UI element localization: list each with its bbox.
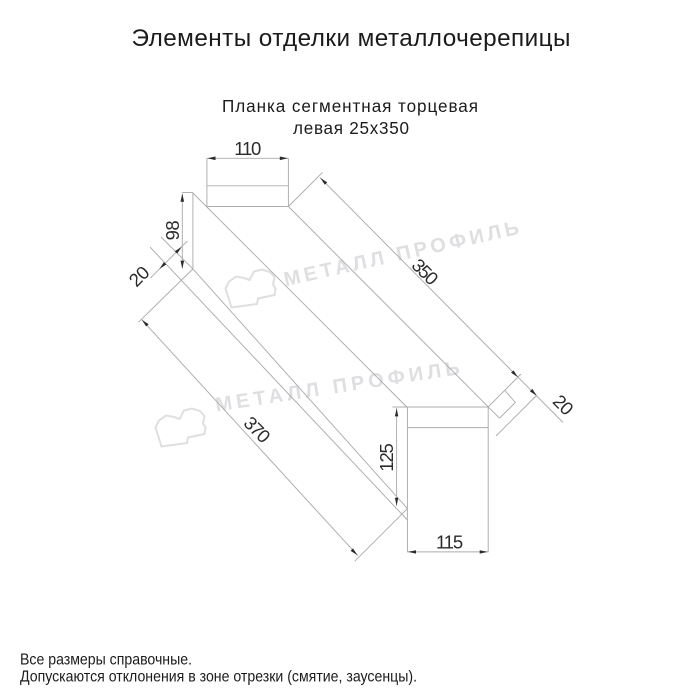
- svg-text:МЕТАЛЛ ПРОФИЛЬ: МЕТАЛЛ ПРОФИЛЬ: [282, 216, 525, 291]
- svg-text:МЕТАЛЛ ПРОФИЛЬ: МЕТАЛЛ ПРОФИЛЬ: [214, 357, 465, 417]
- svg-text:Элементы отделки металлочерепи: Элементы отделки металлочерепицы: [132, 25, 571, 52]
- svg-text:125: 125: [376, 443, 397, 471]
- svg-text:20: 20: [549, 390, 578, 419]
- svg-text:98: 98: [162, 221, 183, 241]
- svg-text:Все размеры справочные.: Все размеры справочные.: [20, 652, 192, 669]
- svg-text:370: 370: [240, 412, 275, 447]
- svg-text:Планка сегментная торцевая: Планка сегментная торцевая: [222, 97, 478, 116]
- svg-text:110: 110: [234, 138, 261, 159]
- svg-text:Допускаются отклонения в зоне: Допускаются отклонения в зоне отрезки (с…: [20, 669, 417, 686]
- svg-text:20: 20: [125, 262, 154, 291]
- svg-text:левая 25х350: левая 25х350: [293, 119, 409, 138]
- svg-text:115: 115: [436, 531, 463, 552]
